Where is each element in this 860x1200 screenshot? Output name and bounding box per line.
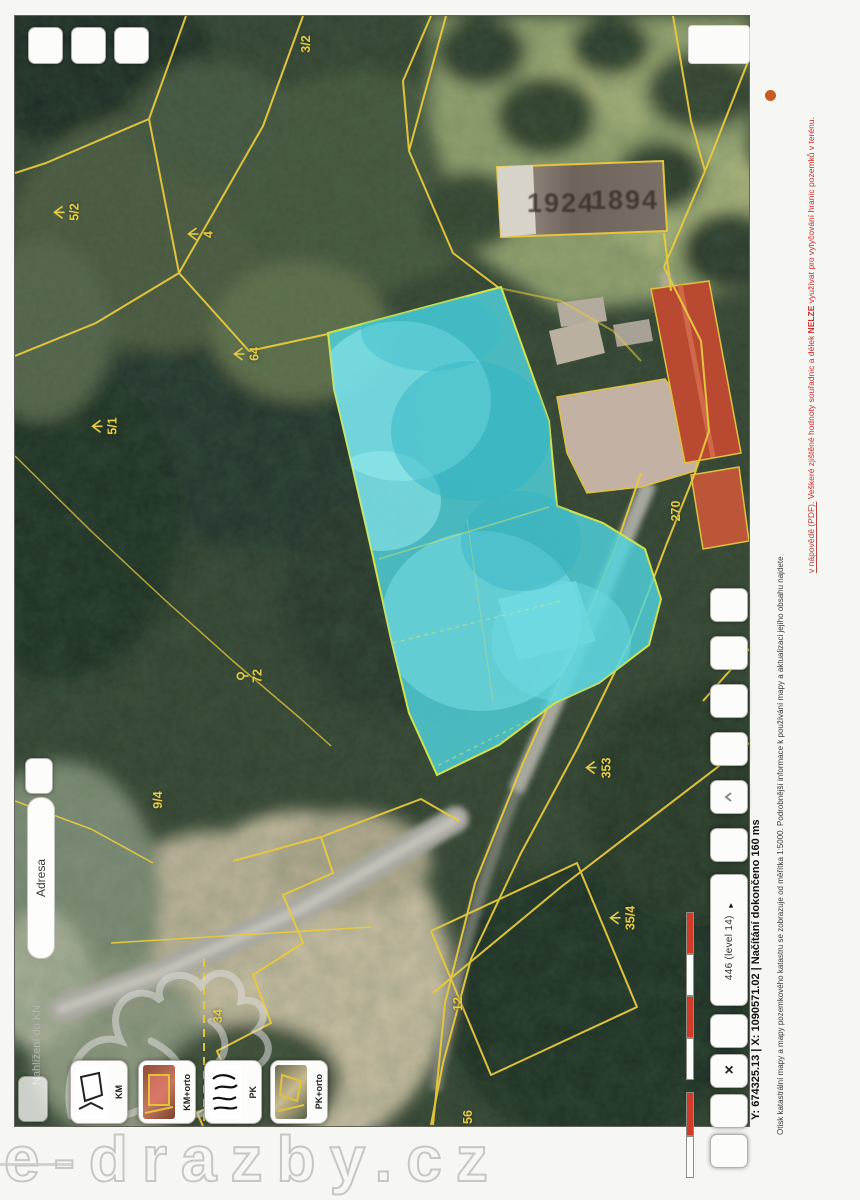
parcel-label-5/2: 5/2 — [51, 203, 82, 220]
layer-button-pk-orto[interactable]: PK+orto — [270, 1060, 328, 1124]
meadow-symbol-icon — [236, 669, 250, 683]
disclaimer-warning: v nápovědě (PDF). Veškeré zjištěné hodno… — [806, 25, 816, 573]
toolbar-button-3[interactable] — [114, 27, 149, 64]
toolbar-button-1[interactable] — [28, 27, 63, 64]
layer-button-pk[interactable]: PK — [204, 1060, 262, 1124]
map-canvas[interactable]: 1924 1894 — [14, 15, 750, 1127]
forest-symbol-icon — [185, 226, 201, 242]
page: { "header": { "app_title": "Nahlížení do… — [0, 0, 860, 1200]
tool-button-4[interactable] — [710, 732, 748, 766]
search-input-label: Adresa — [34, 859, 48, 897]
tool-button-8[interactable] — [710, 1134, 748, 1168]
tool-button-1[interactable] — [710, 588, 748, 622]
parcel-label-353: 353 — [583, 758, 614, 779]
statusbar-text: Y: 674325.13 | X: 1090571.02 | Načítání … — [750, 785, 762, 1120]
tool-button-2[interactable] — [710, 636, 748, 670]
pk-orto-thumbnail-icon — [275, 1065, 307, 1119]
parcel-label-72: 72 — [236, 669, 265, 683]
forest-symbol-icon — [231, 346, 247, 362]
app-title: Nahlížení do KN — [31, 965, 43, 1085]
forest-symbol-icon — [583, 760, 599, 776]
parcel-label-3/2: 3/2 — [299, 35, 313, 52]
parcel-label-9/4: 9/4 — [151, 791, 165, 808]
layer-button-km-orto[interactable]: KM+orto — [138, 1060, 196, 1124]
address-search-input[interactable]: Adresa — [27, 797, 55, 959]
layer-button-km[interactable]: KM — [70, 1060, 128, 1124]
building-1924: 1924 1894 — [497, 161, 667, 237]
chevron-button[interactable] — [710, 780, 748, 814]
search-collapse-button[interactable] — [25, 758, 53, 794]
tool-button-6[interactable] — [710, 1014, 748, 1048]
km-map-thumbnail-icon — [75, 1065, 107, 1119]
parcel-label-12: 12 — [451, 997, 465, 1011]
close-icon: × — [724, 1062, 733, 1080]
tool-button-3[interactable] — [710, 684, 748, 718]
forest-symbol-icon — [89, 418, 105, 434]
zoom-level-display[interactable]: 446 (level 14)▾ — [710, 874, 748, 1006]
layer-label-km-orto: KM+orto — [182, 1074, 192, 1111]
parcel-label-64: 64 — [231, 346, 262, 362]
left-bottom-button[interactable] — [18, 1076, 48, 1122]
top-right-panel — [688, 25, 750, 64]
layer-label-km: KM — [114, 1085, 124, 1099]
pk-map-thumbnail-icon — [209, 1065, 241, 1119]
parcel-label-34: 34 — [211, 1009, 225, 1023]
tool-button-5[interactable] — [710, 828, 748, 862]
parcel-label-4: 4 — [185, 226, 216, 242]
toolbar-button-2[interactable] — [71, 27, 106, 64]
parcel-label-5/1: 5/1 — [89, 417, 120, 434]
layer-label-pk: PK — [248, 1086, 258, 1099]
forest-symbol-icon — [51, 204, 67, 220]
tool-button-7[interactable] — [710, 1094, 748, 1128]
chevron-icon — [721, 789, 737, 805]
map-image: 1924 1894 — [15, 16, 749, 1126]
layer-label-pk-orto: PK+orto — [314, 1074, 324, 1109]
forest-symbol-icon — [607, 910, 623, 926]
km-orto-thumbnail-icon — [143, 1065, 175, 1119]
building-year-left: 1924 — [527, 188, 595, 218]
disclaimer-text: Otisk katastrální mapy a mapy pozemkovéh… — [776, 498, 785, 1135]
building-year-right: 1894 — [591, 185, 659, 215]
parcel-label-270: 270 — [669, 501, 683, 522]
dropdown-arrow-icon: ▾ — [725, 900, 735, 910]
red-dot-artifact — [765, 90, 776, 101]
zoom-level-text: 446 (level 14) — [724, 915, 735, 980]
watermark-text: e-drazby.cz — [4, 1122, 502, 1196]
help-pdf-link[interactable]: v nápovědě (PDF). — [806, 502, 816, 573]
close-button[interactable]: × — [710, 1054, 748, 1088]
parcel-label-35/4: 35/4 — [607, 906, 638, 930]
